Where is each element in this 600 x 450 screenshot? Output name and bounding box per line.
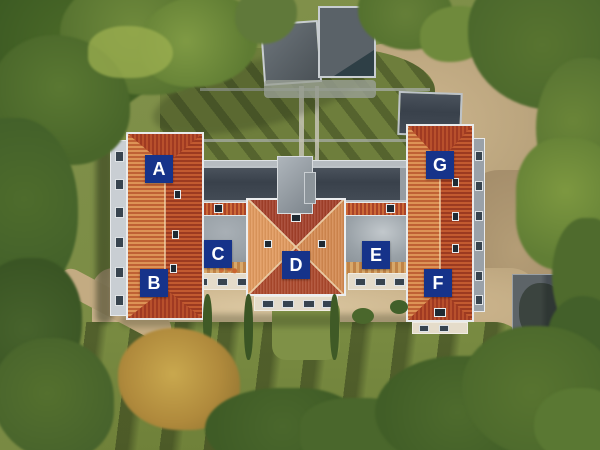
window	[115, 207, 124, 218]
window	[475, 295, 483, 305]
section-e-south-facade	[348, 273, 410, 290]
unit-marker-b[interactable]: B	[140, 269, 168, 297]
window	[115, 151, 124, 162]
window	[419, 325, 429, 332]
roof-window	[174, 190, 181, 199]
unit-marker-a[interactable]: A	[145, 155, 173, 183]
window	[439, 325, 449, 332]
window	[282, 300, 294, 308]
unit-marker-d[interactable]: D	[282, 251, 310, 279]
bush	[352, 308, 374, 324]
annex-dark-section	[334, 50, 374, 76]
window	[303, 300, 315, 308]
unit-marker-f[interactable]: F	[424, 269, 452, 297]
roof-window	[170, 264, 177, 273]
window	[115, 267, 124, 278]
roof-window	[291, 214, 301, 222]
unit-marker-c[interactable]: C	[204, 240, 232, 268]
window	[475, 241, 483, 251]
right-wing-south-facade	[412, 322, 468, 334]
window	[375, 278, 386, 286]
window	[394, 278, 405, 286]
roof-window	[214, 204, 223, 213]
tree-canopy-highlight	[88, 26, 173, 78]
roof-window	[386, 204, 395, 213]
window	[115, 179, 124, 190]
window	[355, 278, 366, 286]
roof-window	[452, 244, 459, 253]
window	[475, 211, 483, 221]
unit-marker-e[interactable]: E	[362, 241, 390, 269]
center-pavilion-south-facade	[254, 296, 338, 311]
window	[475, 181, 483, 191]
roof-window	[318, 240, 326, 248]
window	[115, 237, 124, 248]
hedge-column	[330, 294, 339, 360]
roof-window	[434, 308, 446, 317]
bush	[390, 300, 408, 314]
window	[475, 151, 483, 161]
roof-window	[172, 230, 179, 239]
aerial-photo: A B C D E F G	[0, 0, 600, 450]
section-e-north-roof-slope	[340, 202, 416, 216]
roof-window	[452, 178, 459, 187]
annex-concrete-apron	[264, 80, 376, 98]
window	[115, 295, 124, 306]
window	[262, 300, 274, 308]
roof-window	[452, 212, 459, 221]
window	[475, 271, 483, 281]
unit-marker-g[interactable]: G	[426, 151, 454, 179]
hedge-column	[244, 294, 253, 360]
window	[217, 278, 228, 286]
roof-window	[264, 240, 272, 248]
chimney	[304, 172, 316, 204]
